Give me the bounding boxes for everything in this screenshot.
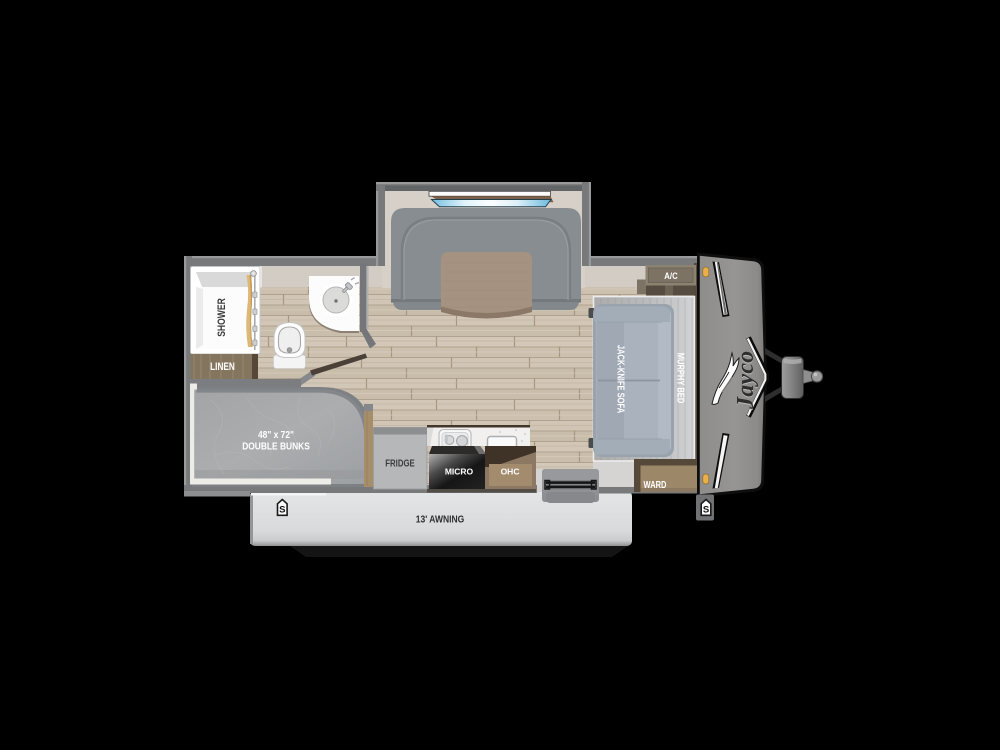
svg-text:DOUBLE BUNKS: DOUBLE BUNKS (242, 440, 310, 452)
svg-text:SHOWER: SHOWER (216, 298, 228, 337)
svg-text:S: S (279, 505, 285, 516)
svg-text:MICRO: MICRO (445, 467, 474, 477)
svg-text:A/C: A/C (664, 270, 678, 281)
svg-text:S: S (703, 505, 709, 516)
svg-text:48" x 72": 48" x 72" (258, 429, 294, 441)
svg-text:MURPHY BED: MURPHY BED (675, 353, 686, 404)
svg-text:LINEN: LINEN (210, 361, 235, 373)
svg-text:Jayco: Jayco (733, 351, 759, 410)
svg-text:13' AWNING: 13' AWNING (416, 514, 464, 525)
svg-text:FRIDGE: FRIDGE (385, 458, 414, 469)
svg-text:WARD: WARD (644, 479, 667, 490)
svg-text:JACK-KNIFE SOFA: JACK-KNIFE SOFA (615, 345, 626, 414)
svg-text:OHC: OHC (501, 467, 520, 477)
